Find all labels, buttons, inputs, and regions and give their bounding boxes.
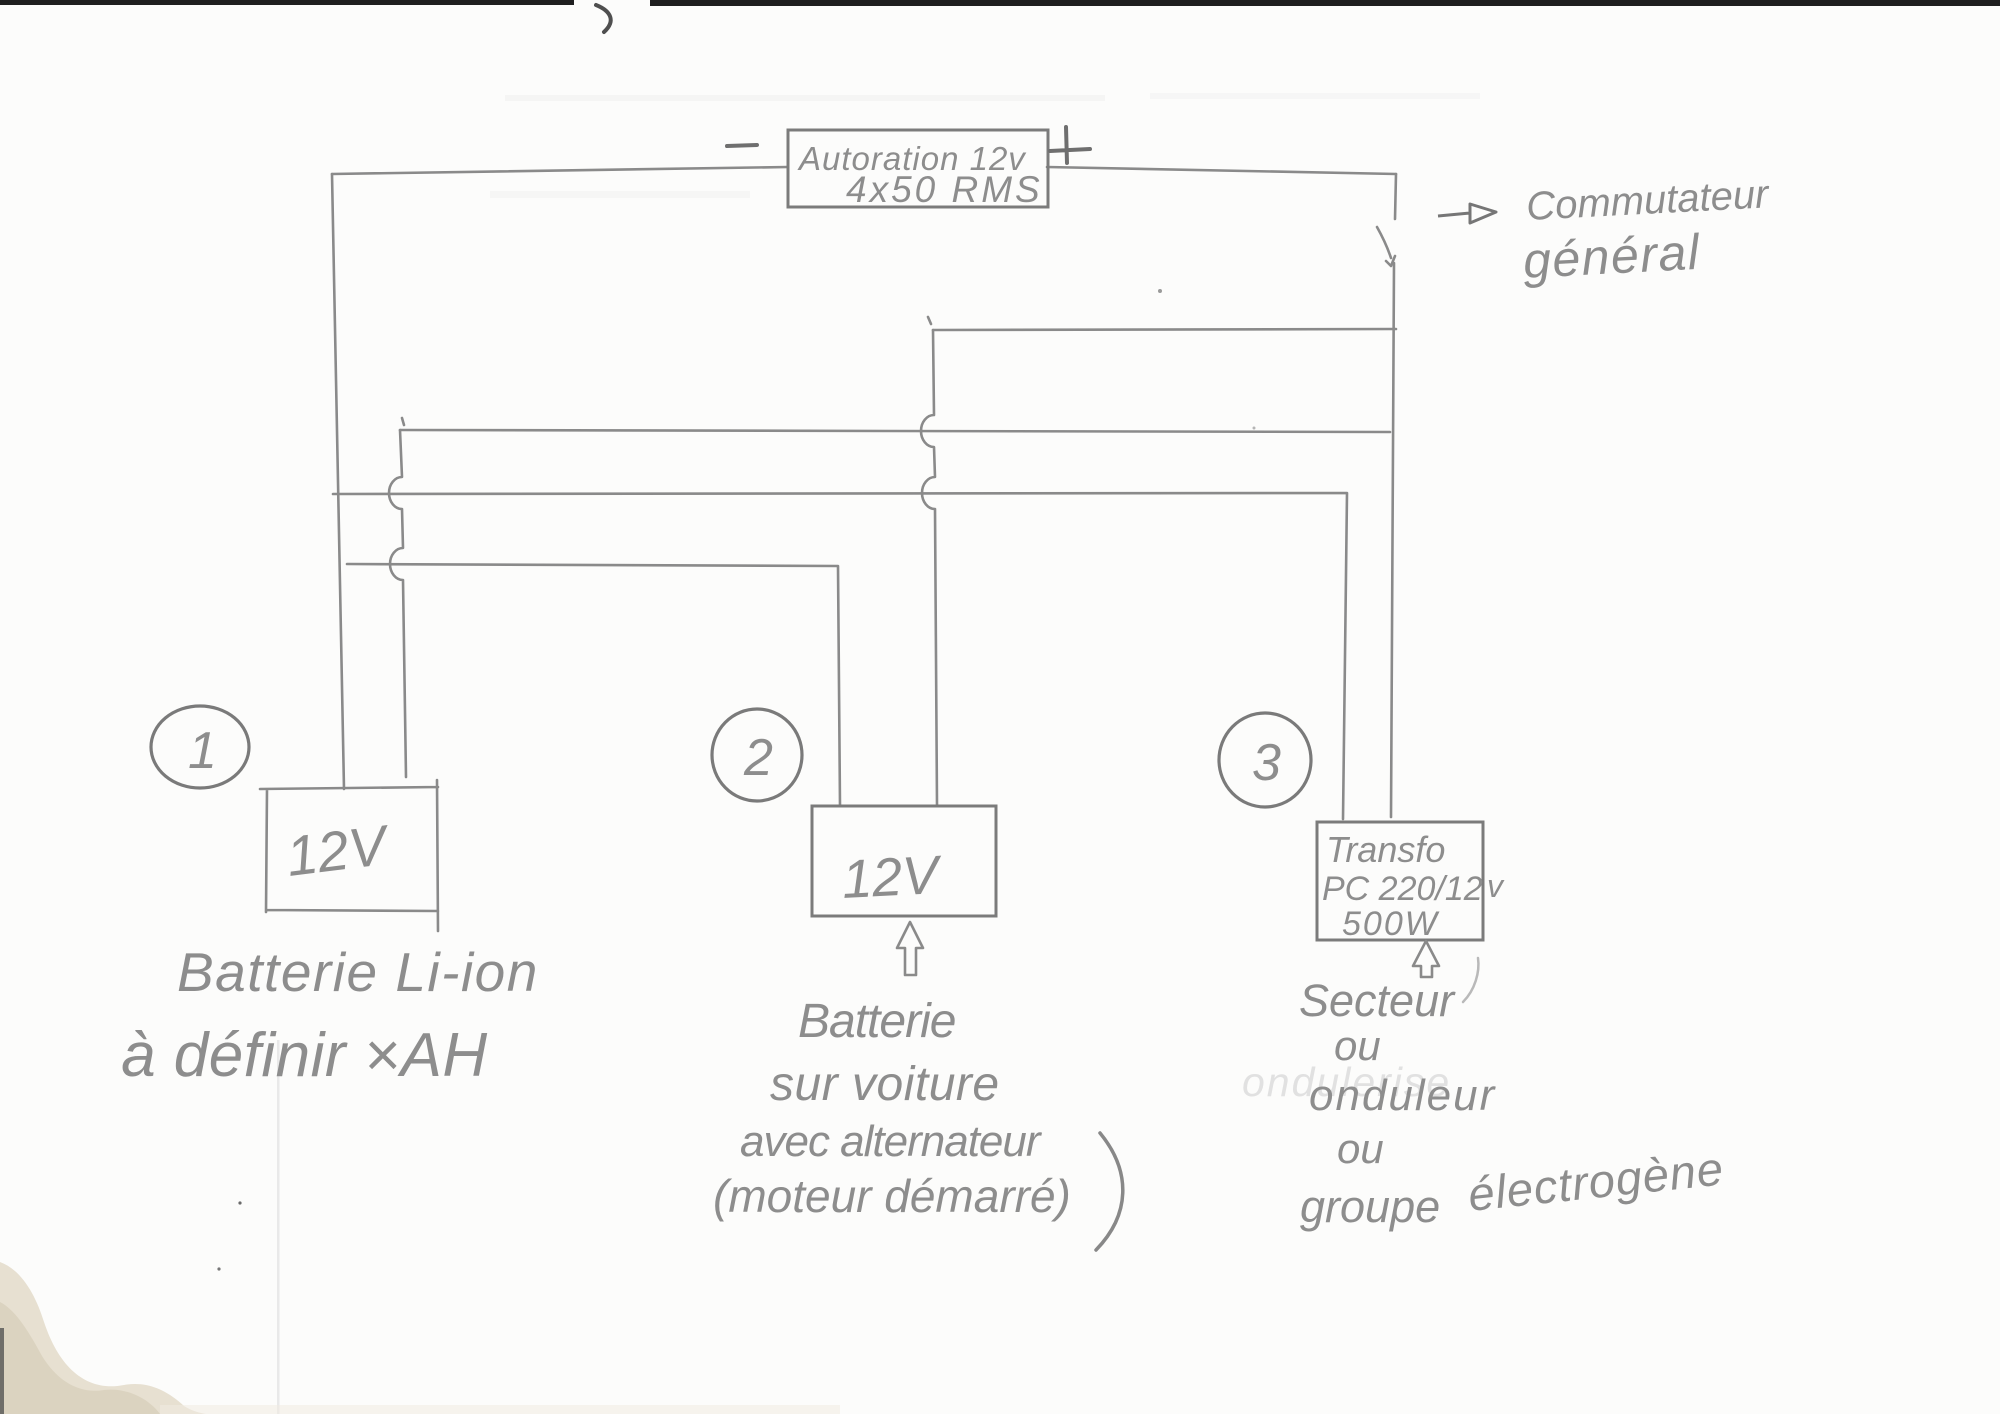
svg-text:ou: ou [1337,1125,1384,1172]
svg-text:(moteur démarré): (moteur démarré) [713,1170,1071,1222]
svg-text:groupe: groupe [1300,1181,1440,1232]
svg-text:onduleur: onduleur [1309,1071,1497,1120]
svg-text:1: 1 [188,722,217,780]
svg-text:12V: 12V [283,813,394,888]
svg-text:4x50 RMS: 4x50 RMS [846,169,1043,210]
svg-text:général: général [1522,224,1702,289]
svg-text:2: 2 [743,729,773,787]
svg-text:500W: 500W [1342,905,1440,943]
svg-text:Transfo: Transfo [1326,829,1445,870]
svg-text:à définir ×AH: à définir ×AH [121,1021,488,1090]
svg-text:Batterie: Batterie [798,995,955,1048]
svg-text:Secteur: Secteur [1299,975,1456,1026]
svg-text:Batterie Li-ion: Batterie Li-ion [177,941,539,1003]
svg-text:avec alternateur: avec alternateur [740,1117,1043,1166]
svg-text:3: 3 [1252,734,1281,792]
svg-text:ou: ou [1334,1022,1381,1069]
svg-text:sur voiture: sur voiture [770,1058,1000,1111]
svg-text:v: v [1487,868,1505,904]
svg-text:12V: 12V [840,845,944,910]
svg-text:PC 220/12: PC 220/12 [1322,870,1483,908]
